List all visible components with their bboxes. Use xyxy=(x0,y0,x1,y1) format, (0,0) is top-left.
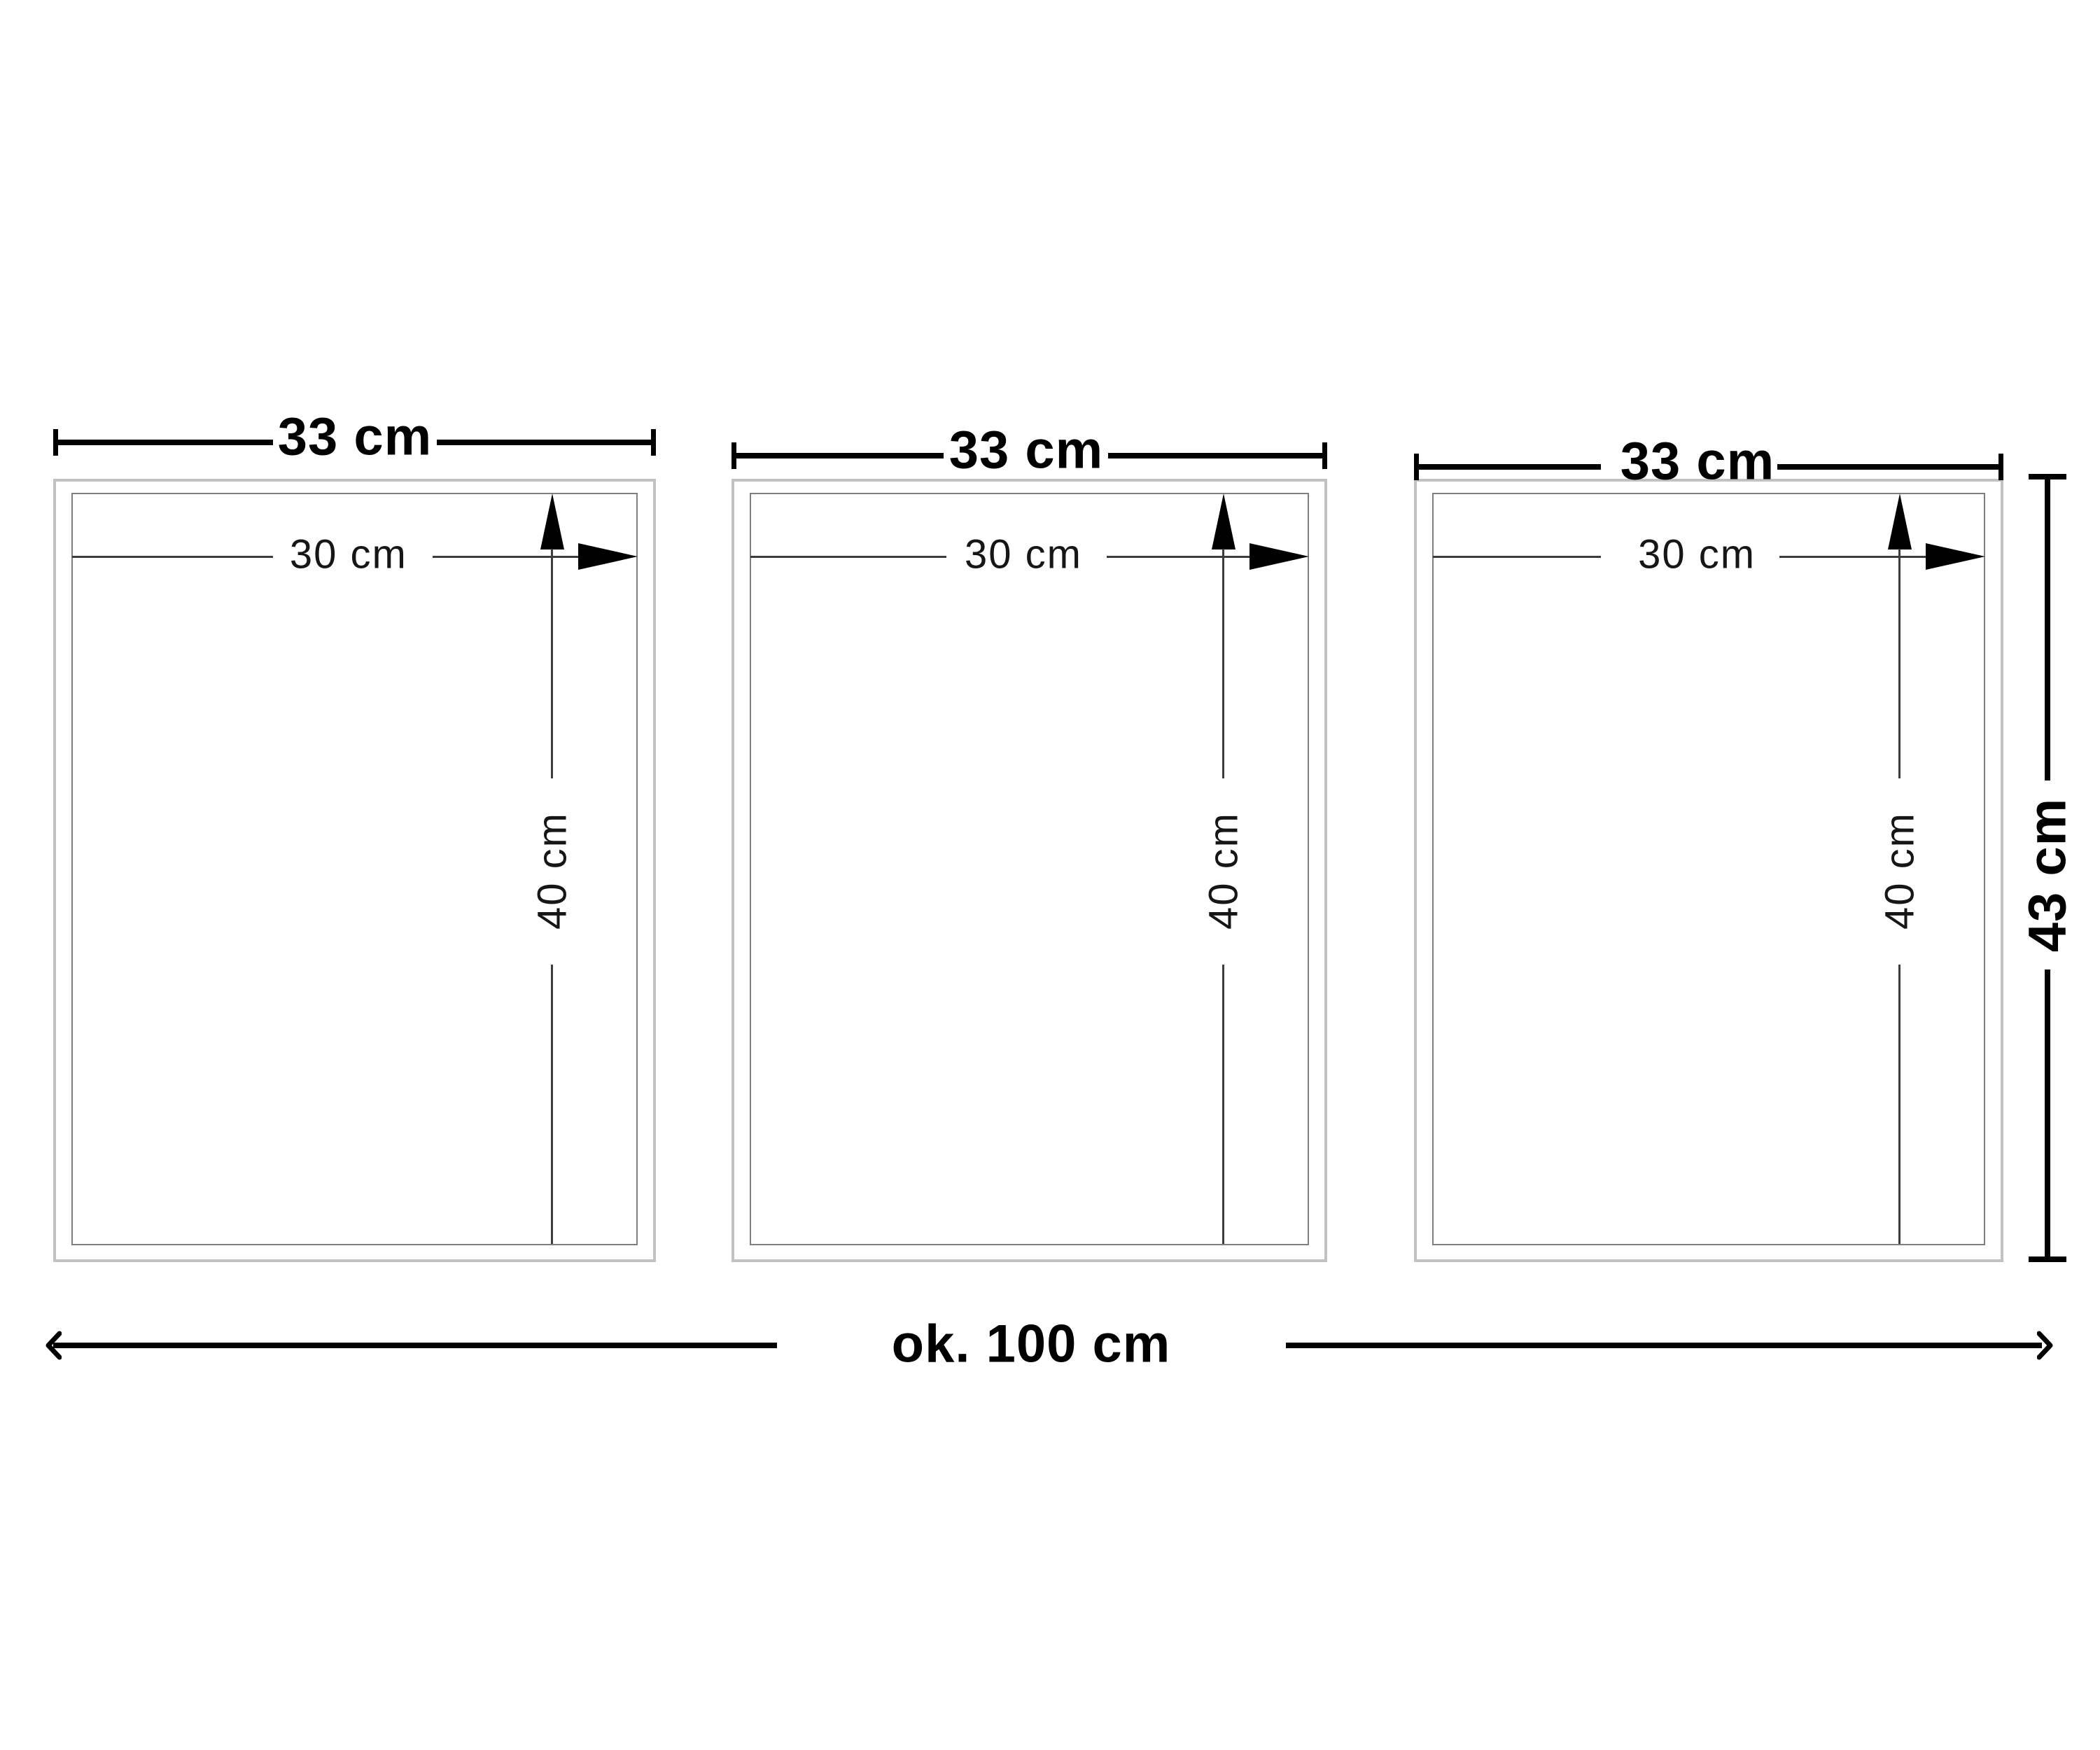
frame-width-label: 33 cm xyxy=(1620,431,1775,492)
dimension-line-segment xyxy=(735,453,944,458)
picture-height-label: 40 cm xyxy=(1877,812,1924,930)
dimension-line-segment xyxy=(2045,477,2050,780)
total-width-label: ok. 100 cm xyxy=(892,1314,1171,1375)
dimension-end-cap xyxy=(2029,1256,2066,1262)
picture-height-line-segment xyxy=(551,549,553,778)
dimension-end-tick xyxy=(1322,442,1327,469)
dimension-line-segment xyxy=(437,440,652,445)
total-height-label: 43 cm xyxy=(2017,798,2078,953)
frame-set-dimensions-diagram: 33 cm 30 cm 40 cm 33 cm 30 cm xyxy=(0,0,2100,1750)
picture-width-label: 30 cm xyxy=(290,531,407,578)
dimension-end-tick xyxy=(1998,454,2003,480)
picture-width-label: 30 cm xyxy=(965,531,1082,578)
picture-height-line-segment xyxy=(1222,549,1224,778)
dimension-line-segment xyxy=(53,1343,777,1348)
arrow-right-icon xyxy=(578,543,638,570)
dimension-line-segment xyxy=(1417,464,1601,470)
dimension-end-tick xyxy=(651,429,656,456)
picture-height-line-segment xyxy=(1222,965,1224,1244)
picture-width-line-segment xyxy=(750,556,946,558)
arrow-right-icon xyxy=(1926,543,1985,570)
picture-height-label: 40 cm xyxy=(1200,812,1247,930)
picture-width-line-segment xyxy=(433,556,578,558)
picture-width-line-segment xyxy=(72,556,273,558)
dimension-line-segment xyxy=(1286,1343,2042,1348)
dimension-line-segment xyxy=(1777,464,2000,470)
frame-1: 33 cm 30 cm 40 cm xyxy=(53,479,656,1262)
picture-height-label: 40 cm xyxy=(529,812,576,930)
picture-height-line-segment xyxy=(551,965,553,1244)
frame-3: 33 cm 30 cm 40 cm xyxy=(1414,479,2003,1262)
picture-height-line-segment xyxy=(1898,549,1900,778)
dimension-line-segment xyxy=(1108,453,1324,458)
arrow-up-icon xyxy=(1888,493,1912,549)
arrow-right-icon xyxy=(2037,1329,2054,1362)
arrow-right-icon xyxy=(1249,543,1309,570)
arrow-up-icon xyxy=(540,493,564,549)
picture-width-line-segment xyxy=(1107,556,1249,558)
frame-width-label: 33 cm xyxy=(278,407,433,468)
dimension-line-segment xyxy=(57,440,273,445)
picture-height-line-segment xyxy=(1898,965,1900,1244)
picture-width-label: 30 cm xyxy=(1638,531,1756,578)
picture-width-line-segment xyxy=(1779,556,1926,558)
frame-width-label: 33 cm xyxy=(949,420,1104,481)
dimension-line-segment xyxy=(2045,969,2050,1260)
picture-width-line-segment xyxy=(1433,556,1601,558)
frame-2: 33 cm 30 cm 40 cm xyxy=(731,479,1327,1262)
arrow-up-icon xyxy=(1212,493,1235,549)
